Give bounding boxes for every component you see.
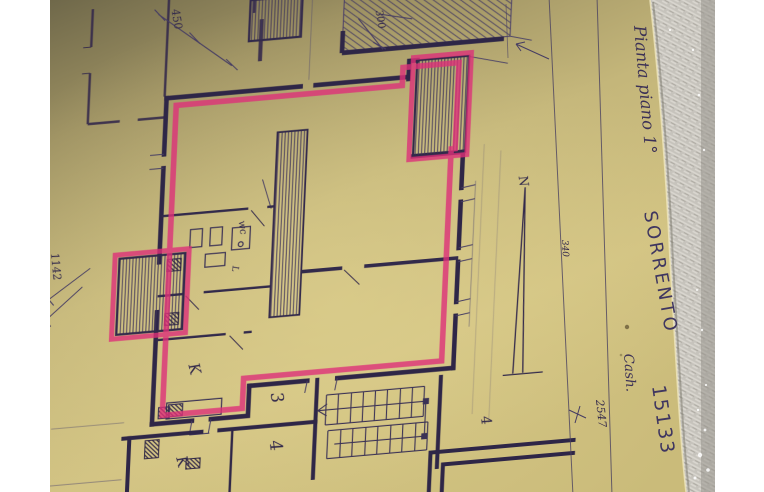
top-balcony-hatched: [249, 0, 303, 41]
paper-sheet: [50, 0, 689, 492]
door-mark-label: L: [229, 265, 240, 272]
floor-plan-photo: N 450 300 wc L K K 3 4 4 1142 340 2547 P…: [0, 0, 764, 492]
margin-small-number: 340: [559, 240, 570, 258]
photo-canvas: N 450 300 wc L K K 3 4 4 1142 340 2547 P…: [0, 0, 764, 492]
left-margin: [0, 0, 50, 492]
paper-stain: [625, 325, 629, 329]
handwritten-ref-prefix: Cash.: [620, 353, 639, 392]
right-margin: [715, 0, 764, 492]
flue-block: [144, 440, 159, 459]
parcel-label: 1142: [48, 252, 64, 282]
